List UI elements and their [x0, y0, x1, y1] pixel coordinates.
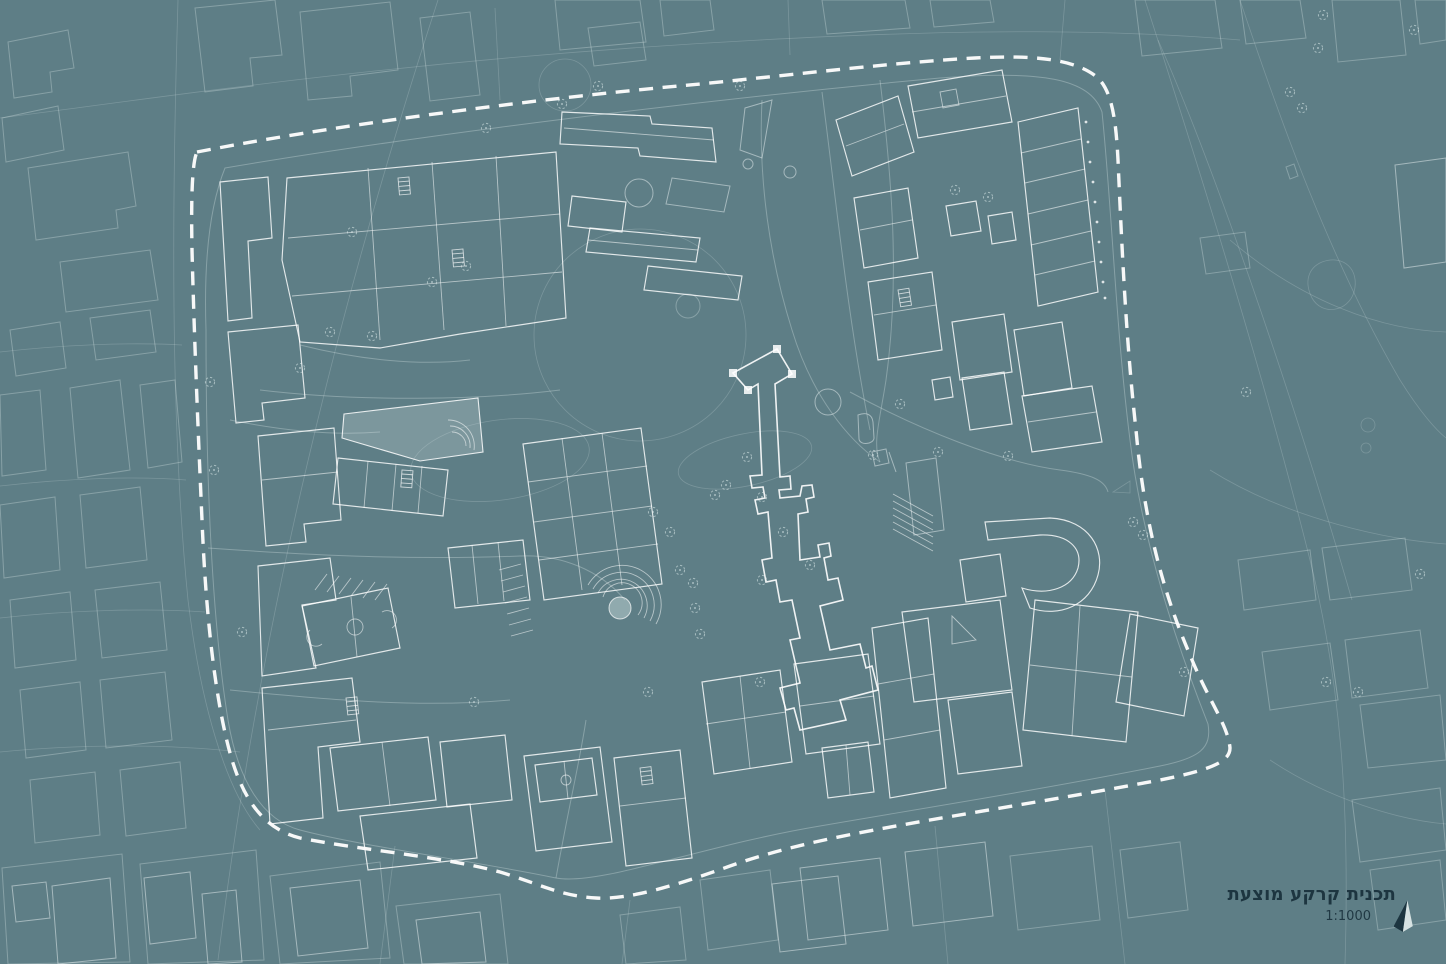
- north-arrow-icon: [1394, 898, 1416, 936]
- site-buildings-layer: [220, 70, 1198, 870]
- horseshoe-building: [985, 518, 1100, 611]
- car-symbol: [858, 414, 874, 444]
- courtyard-block: [282, 152, 566, 348]
- plan-title: תכנית קרקע מוצעת: [1227, 884, 1396, 906]
- basketball-court: [302, 588, 400, 666]
- row-housing-strip: [1018, 108, 1106, 306]
- trees-layer: [205, 10, 1424, 706]
- pond-circle: [815, 389, 841, 415]
- highlighted-building: [342, 398, 483, 461]
- plan-scale: 1:1000: [1227, 909, 1371, 924]
- site-plan-canvas: תכנית קרקע מוצעת 1:1000: [0, 0, 1446, 964]
- central-complex: [729, 345, 878, 730]
- amphitheater: [588, 565, 661, 624]
- title-block: תכנית קרקע מוצעת 1:1000: [1227, 884, 1396, 924]
- slab-building: [560, 112, 716, 162]
- site-plan-map: [0, 0, 1446, 964]
